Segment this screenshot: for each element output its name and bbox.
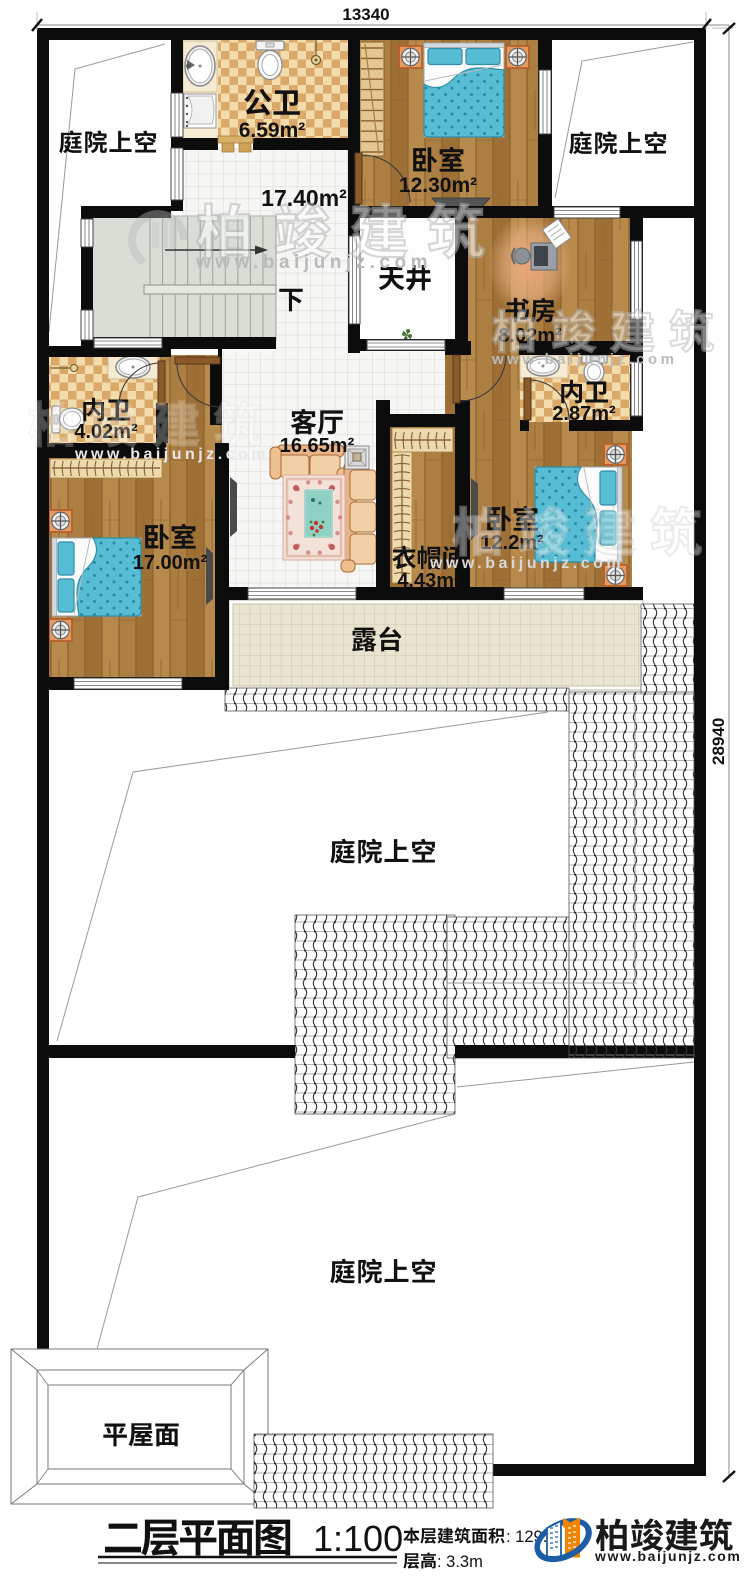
svg-text:6.59m²: 6.59m² [239, 119, 306, 142]
svg-text:28940: 28940 [709, 718, 728, 765]
svg-text:www.baijunjz.com: www.baijunjz.com [429, 555, 624, 572]
svg-text:16.65m²: 16.65m² [280, 435, 355, 457]
svg-text:www.baijunjz.com: www.baijunjz.com [74, 446, 269, 463]
svg-text:1:100: 1:100 [313, 1518, 403, 1559]
svg-text:4.43m²: 4.43m² [397, 570, 461, 592]
svg-text:17.00m²: 17.00m² [133, 552, 208, 574]
svg-text:2.87m²: 2.87m² [552, 403, 616, 425]
svg-text:www.baijunjz.com: www.baijunjz.com [491, 351, 677, 368]
svg-text:www.baijunjz.com: www.baijunjz.com [195, 252, 432, 273]
svg-text:12.30m²: 12.30m² [399, 174, 477, 197]
svg-text:www.baijunjz.com: www.baijunjz.com [594, 1548, 741, 1564]
svg-text:: 3.3m: : 3.3m [437, 1553, 483, 1571]
svg-text:13340: 13340 [342, 5, 389, 24]
